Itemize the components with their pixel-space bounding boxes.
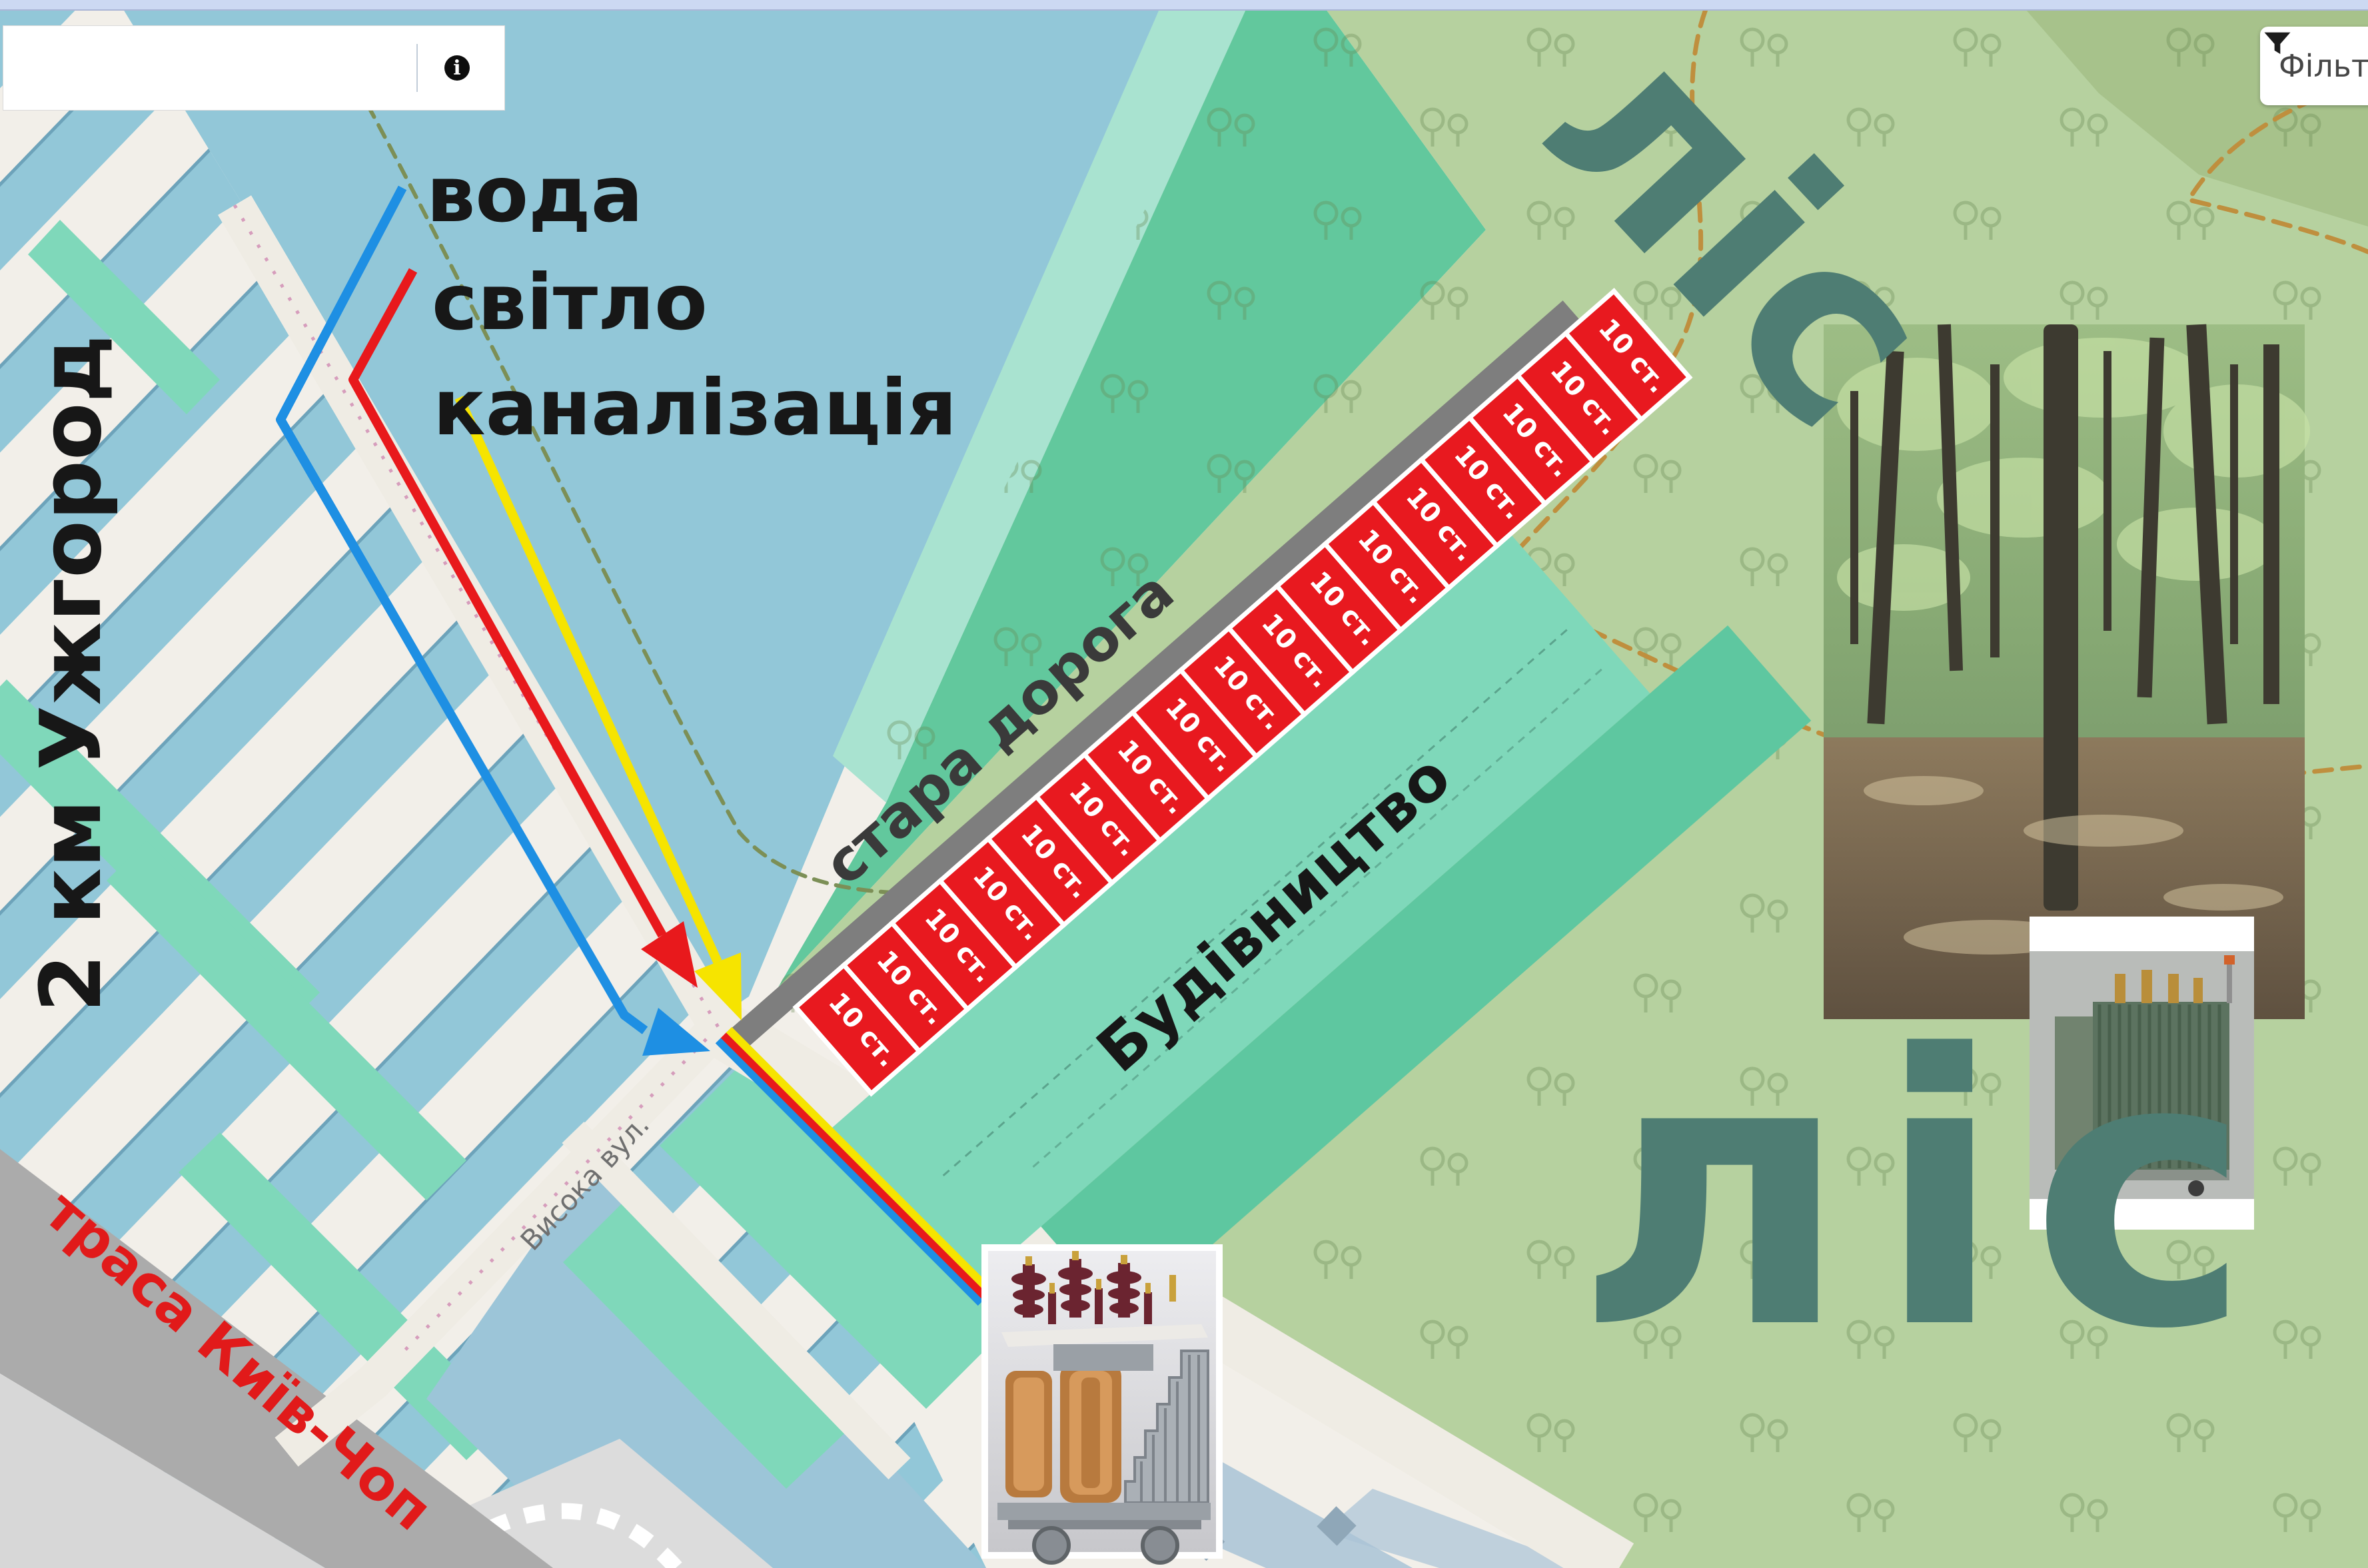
page: { "search": { "value": "", "placeholder"… [0,0,2368,1568]
search-box[interactable]: i [3,25,505,111]
forest-label-bottom: ліс [1576,977,2278,1411]
legend-electricity-label: світло [432,258,708,348]
legend-water-label: вода [426,150,643,240]
legend-sewerage-label: каналізація [433,363,957,453]
filter-button[interactable]: Фільтр [2260,27,2368,105]
filter-funnel-icon [2260,27,2295,61]
map-canvas[interactable]: 10 ст.10 ст.10 ст.10 ст.10 ст.10 ст.10 с… [0,0,2368,1568]
info-icon[interactable]: i [444,55,470,81]
top-bar [0,0,2368,11]
search-input[interactable] [3,26,416,110]
search-divider [416,44,418,92]
forest-photo [1824,324,2310,1019]
distance-label: 2 км Ужгород [22,335,120,1012]
transformer-photo-bottom [981,1244,1223,1563]
